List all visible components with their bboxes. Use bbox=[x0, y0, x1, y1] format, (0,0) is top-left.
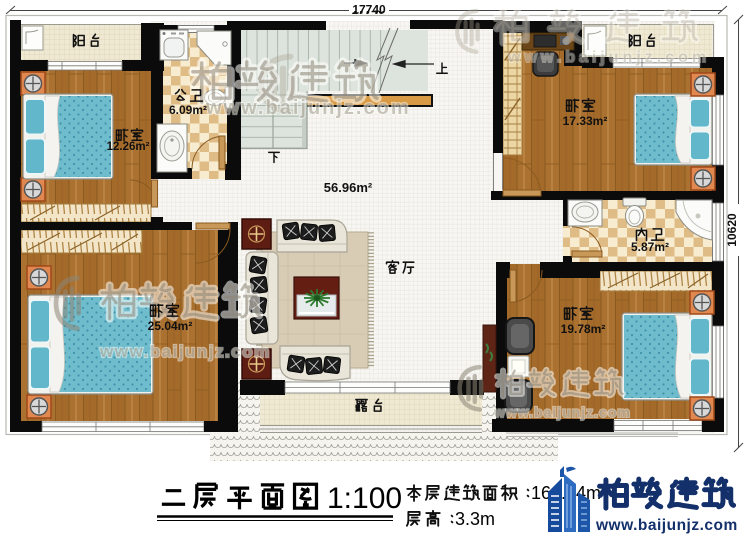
svg-text:www.baijunjz.com: www.baijunjz.com bbox=[99, 342, 271, 361]
svg-text:12.26m²: 12.26m² bbox=[107, 141, 150, 153]
svg-text:56.96m²: 56.96m² bbox=[324, 180, 373, 195]
svg-text:25.04m²: 25.04m² bbox=[148, 319, 193, 333]
svg-text:www.baijunjz.com: www.baijunjz.com bbox=[205, 97, 411, 119]
svg-text:www.baijunjz.com: www.baijunjz.com bbox=[507, 49, 710, 66]
svg-text:5.87m²: 5.87m² bbox=[631, 240, 669, 254]
svg-text:www.baijunjz.com: www.baijunjz.com bbox=[493, 404, 631, 420]
svg-text:3.3m: 3.3m bbox=[455, 509, 495, 529]
svg-text:17.33m²: 17.33m² bbox=[563, 114, 608, 128]
svg-text:17740: 17740 bbox=[352, 3, 386, 17]
svg-text:6.09m²: 6.09m² bbox=[169, 103, 207, 117]
svg-text:19.78m²: 19.78m² bbox=[561, 322, 606, 336]
svg-text:www.baijunjz.com: www.baijunjz.com bbox=[595, 517, 738, 534]
svg-text:1:100: 1:100 bbox=[327, 482, 402, 515]
